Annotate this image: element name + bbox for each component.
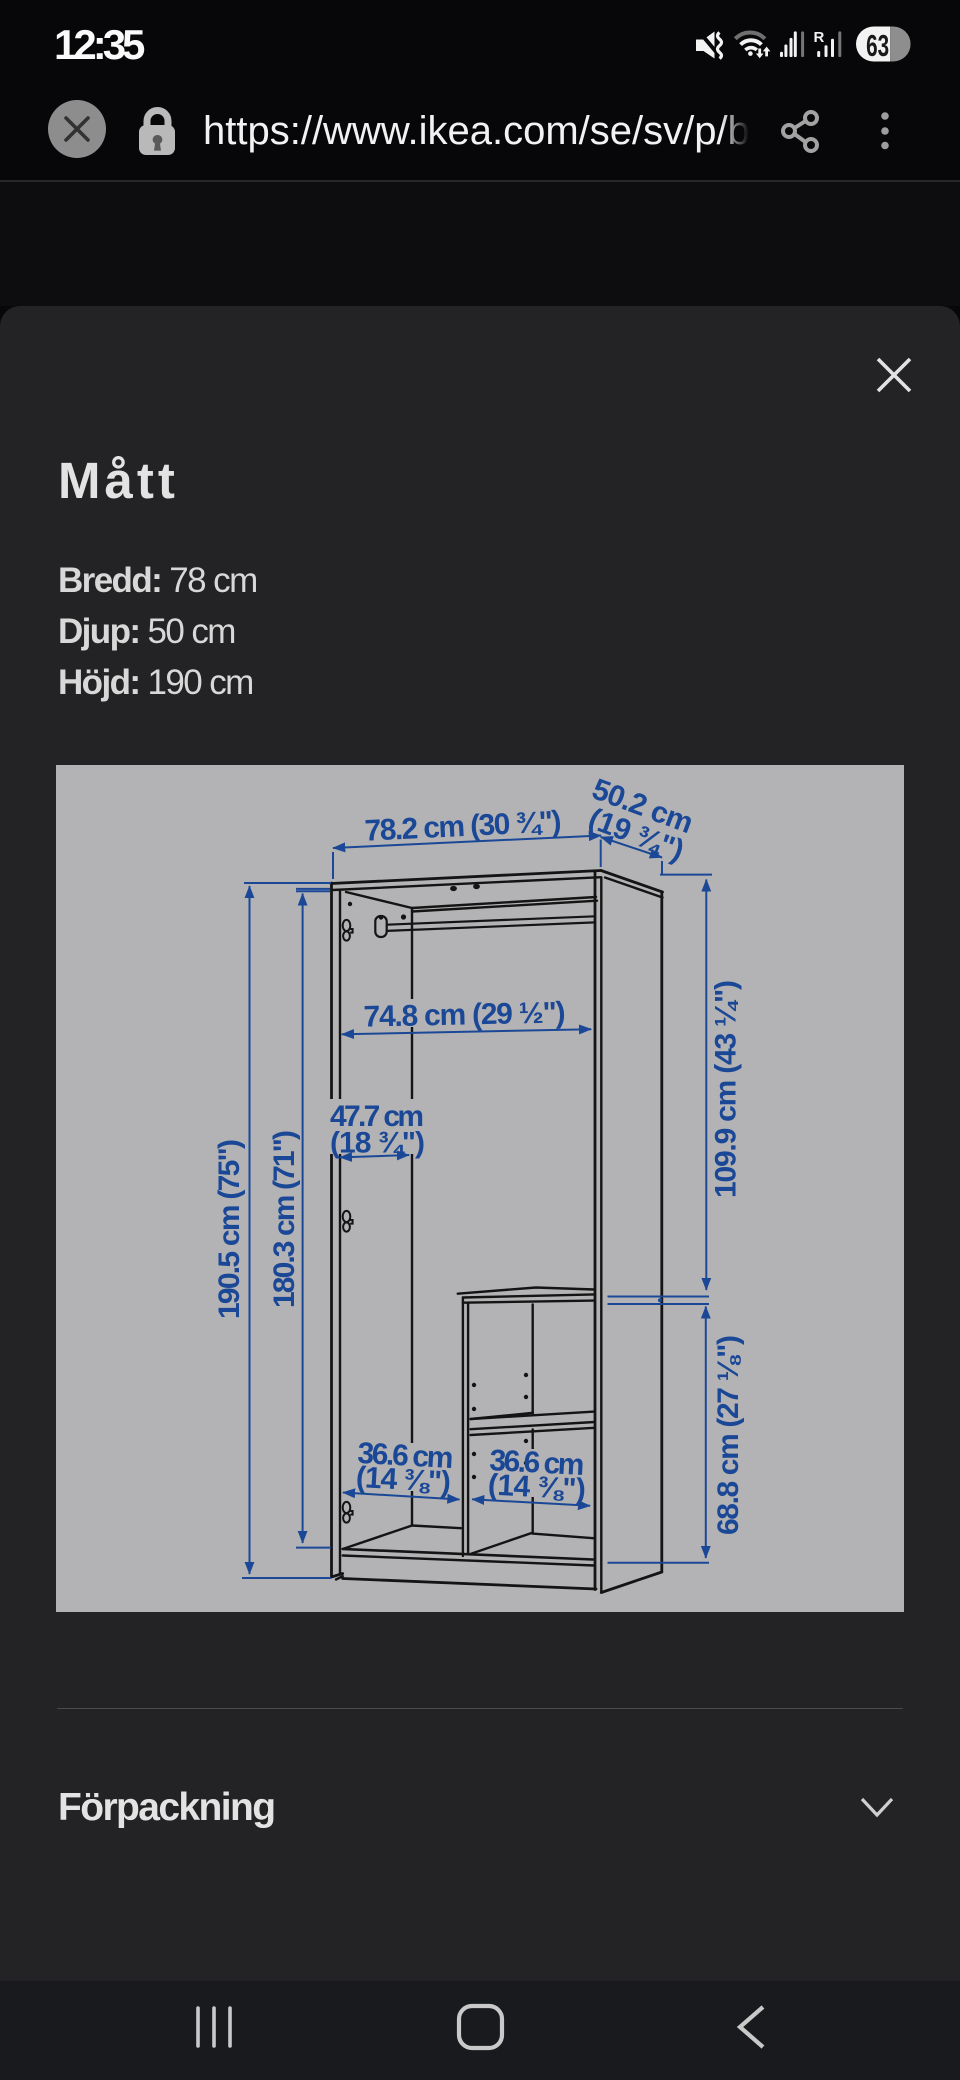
svg-text:68.8 cm (27 ⅛"): 68.8 cm (27 ⅛") <box>712 1335 745 1535</box>
svg-text:74.8 cm (29 ½"): 74.8 cm (29 ½") <box>363 996 566 1033</box>
svg-text:(18 ¾"): (18 ¾") <box>330 1127 425 1160</box>
svg-text:R: R <box>814 29 825 46</box>
svg-text:78.2 cm (30 ¾"): 78.2 cm (30 ¾") <box>364 805 562 848</box>
svg-text:190.5 cm (75"): 190.5 cm (75") <box>213 1139 246 1319</box>
svg-text:63: 63 <box>866 28 889 63</box>
svg-text:180.3 cm (71"): 180.3 cm (71") <box>268 1130 301 1308</box>
svg-text:(14 ⅜"): (14 ⅜") <box>355 1461 452 1499</box>
svg-text:(14 ⅜"): (14 ⅜") <box>487 1468 587 1506</box>
svg-text:109.9 cm (43 ¼"): 109.9 cm (43 ¼") <box>710 980 743 1198</box>
